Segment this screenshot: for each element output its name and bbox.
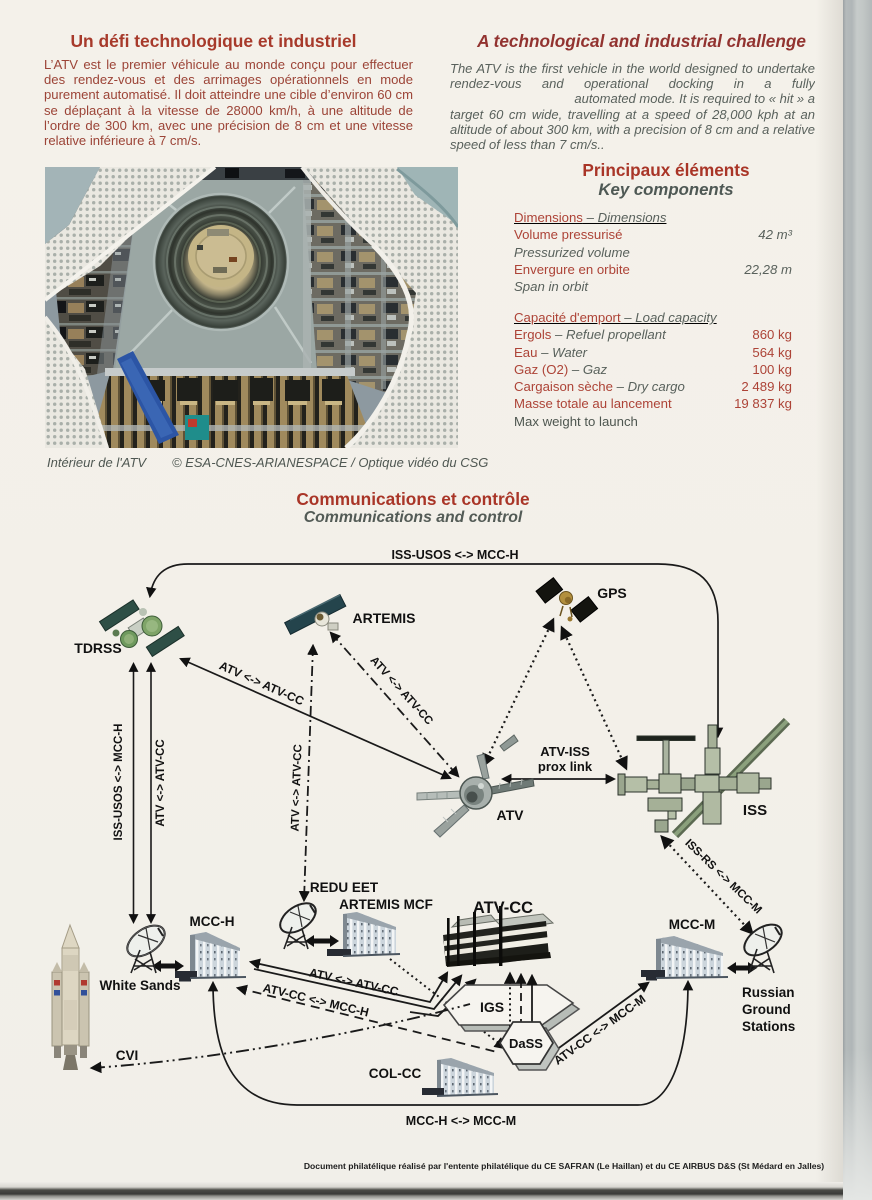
svg-text:Stations: Stations <box>742 1019 795 1034</box>
svg-text:CVI: CVI <box>116 1048 139 1063</box>
svg-text:GPS: GPS <box>597 585 627 601</box>
svg-text:ATV: ATV <box>497 807 525 823</box>
svg-text:ISS-RS <-> MCC-M: ISS-RS <-> MCC-M <box>682 837 763 916</box>
svg-text:ISS: ISS <box>743 802 767 819</box>
svg-text:ATV <-> ATV-CC: ATV <-> ATV-CC <box>217 658 306 708</box>
svg-text:White Sands: White Sands <box>99 978 180 993</box>
svg-text:ATV <-> ATV-CC: ATV <-> ATV-CC <box>289 744 304 832</box>
svg-text:TDRSS: TDRSS <box>74 640 121 656</box>
svg-text:ATV-CC: ATV-CC <box>473 899 533 917</box>
svg-text:ISS-USOS <-> MCC-H: ISS-USOS <-> MCC-H <box>391 548 518 562</box>
svg-text:REDU EET: REDU EET <box>310 880 379 895</box>
svg-text:Russian: Russian <box>742 985 795 1000</box>
svg-text:MCC-M: MCC-M <box>669 917 716 932</box>
svg-text:DaSS: DaSS <box>509 1036 543 1051</box>
svg-text:ATV <-> ATV-CC: ATV <-> ATV-CC <box>368 655 435 728</box>
svg-text:prox link: prox link <box>538 759 593 774</box>
svg-text:MCC-H <-> MCC-M: MCC-H <-> MCC-M <box>406 1114 516 1128</box>
svg-text:ISS-USOS <-> MCC-H: ISS-USOS <-> MCC-H <box>113 724 125 841</box>
svg-text:ARTEMIS: ARTEMIS <box>353 610 416 626</box>
svg-text:Ground: Ground <box>742 1002 791 1017</box>
svg-text:ATV <-> ATV-CC: ATV <-> ATV-CC <box>155 739 167 826</box>
svg-text:ATV-ISS: ATV-ISS <box>540 744 590 759</box>
svg-text:IGS: IGS <box>480 999 504 1015</box>
svg-text:MCC-H: MCC-H <box>190 914 235 929</box>
svg-text:ARTEMIS MCF: ARTEMIS MCF <box>339 897 433 912</box>
svg-text:COL-CC: COL-CC <box>369 1066 422 1081</box>
